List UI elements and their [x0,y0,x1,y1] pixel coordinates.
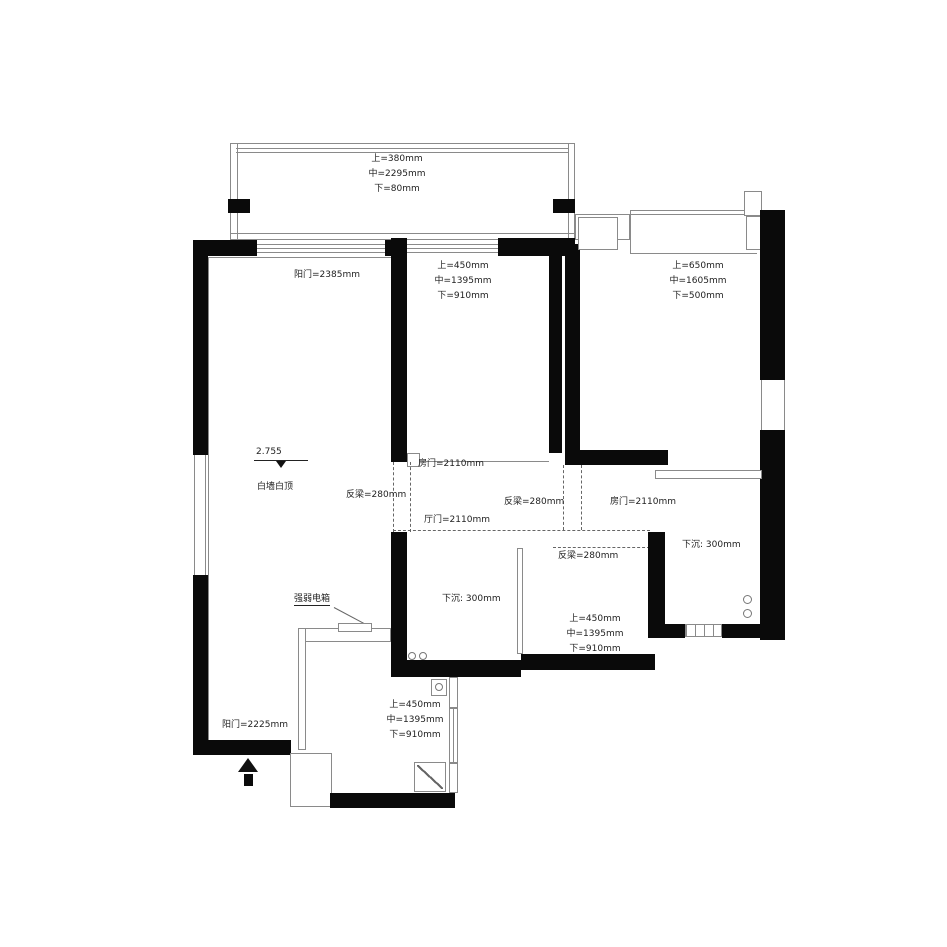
sunken-shower-label: 下沉: 300mm [442,595,501,604]
annotation-line: 下=80mm [352,182,442,197]
beam-dashed-line [410,462,411,532]
annotation-line: 下=500mm [658,289,738,304]
balcony-post-left [228,199,250,213]
bedroom1-window-edge [630,210,631,253]
living-door-label: 厅门=2110mm [424,516,490,525]
annotation-line: 中=1605mm [658,274,738,289]
annotation-line: 中=2295mm [352,167,442,182]
plumbing-point [419,652,427,660]
annotation-line: 上=650mm [658,259,738,274]
kitchen-wall-bottom [391,660,521,677]
plumbing-point [743,595,752,604]
entry-wall-right-upper [449,677,458,708]
balcony-door-line [257,248,385,249]
annotation-line: 中=1395mm [558,627,632,642]
wall-finish-label: 白墙白顶 [257,483,293,492]
balcony-door-line [257,244,385,245]
annotation-line: 中=1395mm [428,274,498,289]
bedroom1-sill-line [630,253,757,254]
entry-door-label: 阳门=2225mm [222,721,288,730]
north-arrow-base [244,774,253,786]
floor-plan-canvas: 上=380mm 中=2295mm 下=80mm 阳门=2385mm 2.755 … [0,0,947,947]
wall-right-lower [760,430,785,640]
bedroom1-window-line [630,210,762,211]
bedroom2-window-line [407,252,498,253]
beam-label-right: 反梁=280mm [558,552,618,561]
elevation-marker-icon [276,461,286,468]
bathroom-window [685,624,722,637]
bedroom2-wall-right [549,240,562,453]
bathroom-wall-bottom-left [648,624,685,638]
left-window-line [205,455,206,575]
bedroom2-window-line [407,244,498,245]
bedroom2-wall-top [498,238,575,256]
sunken-bath-label: 下沉: 300mm [682,541,741,550]
electric-box-label: 强弱电箱 [294,595,330,606]
annotation-line: 上=450mm [558,612,632,627]
gas-meter-dial [435,683,443,691]
right-window-line [784,380,785,430]
bedroom2-wall-left [391,238,407,462]
balcony-rail-left [237,143,238,240]
plumbing-point [408,652,416,660]
wall-top-left [193,240,257,256]
balcony-rail-right [568,143,569,240]
beam-label-mid: 反梁=280mm [504,498,564,507]
midroom-divider-wall [517,548,523,654]
ac-unit-box [578,217,618,250]
beam-dashed-line [581,465,582,530]
bathroom-wall-left [648,532,665,638]
entry-porch-outline [290,753,332,807]
wall-left-upper [193,240,208,455]
bathroom-wall-top [655,470,762,479]
wall-left-lower [193,575,208,755]
entry-window-midline [453,708,454,763]
appliance-diagonal [417,765,443,789]
annotation-line: 上=450mm [428,259,498,274]
kitchen-wall-left [391,532,407,662]
entry-wall-right-lower [449,763,458,793]
plumbing-point [743,609,752,618]
bathroom-wall-bottom-right [722,624,785,638]
wall-inner-face-left [208,257,209,740]
left-window-line [194,455,195,575]
beam-label-left: 反梁=280mm [346,491,406,500]
balcony-door-label: 阳门=2385mm [294,271,360,280]
annotation-line: 上=450mm [383,698,447,713]
annotation-line: 下=910mm [383,728,447,743]
midroom-window-annotation: 上=450mm 中=1395mm 下=910mm [558,612,632,657]
annotation-line: 下=910mm [558,642,632,657]
annotation-line: 上=380mm [352,152,442,167]
elevation-value: 2.755 [256,448,282,457]
bedroom2-window-annotation: 上=450mm 中=1395mm 下=910mm [428,259,498,304]
bedroom1-window-line [630,214,762,215]
bedroom2-door-label: 房门=2110mm [418,460,484,469]
entry-wall-bottom [330,793,455,808]
bathroom-door-label: 房门=2110mm [610,498,676,507]
entry-cabinet [338,623,372,632]
balcony-window-line [236,148,569,149]
entry-window-annotation: 上=450mm 中=1395mm 下=910mm [383,698,447,743]
entry-wall-left [298,628,306,750]
annotation-line: 中=1395mm [383,713,447,728]
north-arrow-icon [238,758,258,772]
bedroom2-window-line [407,248,498,249]
bedroom1-wall-bottom [565,450,668,465]
wall-bottom-left [193,740,291,755]
balcony-window-annotation: 上=380mm 中=2295mm 下=80mm [352,152,442,197]
balcony-sill-line [230,233,575,234]
beam-dashed-line [553,547,650,548]
wall-inner-face-top [208,257,391,258]
partition-wall-right [565,244,580,465]
annotation-line: 下=910mm [428,289,498,304]
bedroom1-window-annotation: 上=650mm 中=1605mm 下=500mm [658,259,738,304]
wall-right-upper [760,210,785,380]
balcony-post-right [553,199,575,213]
balcony-door-line [257,252,385,253]
right-window-line [761,380,762,430]
beam-dashed-line [393,530,650,531]
